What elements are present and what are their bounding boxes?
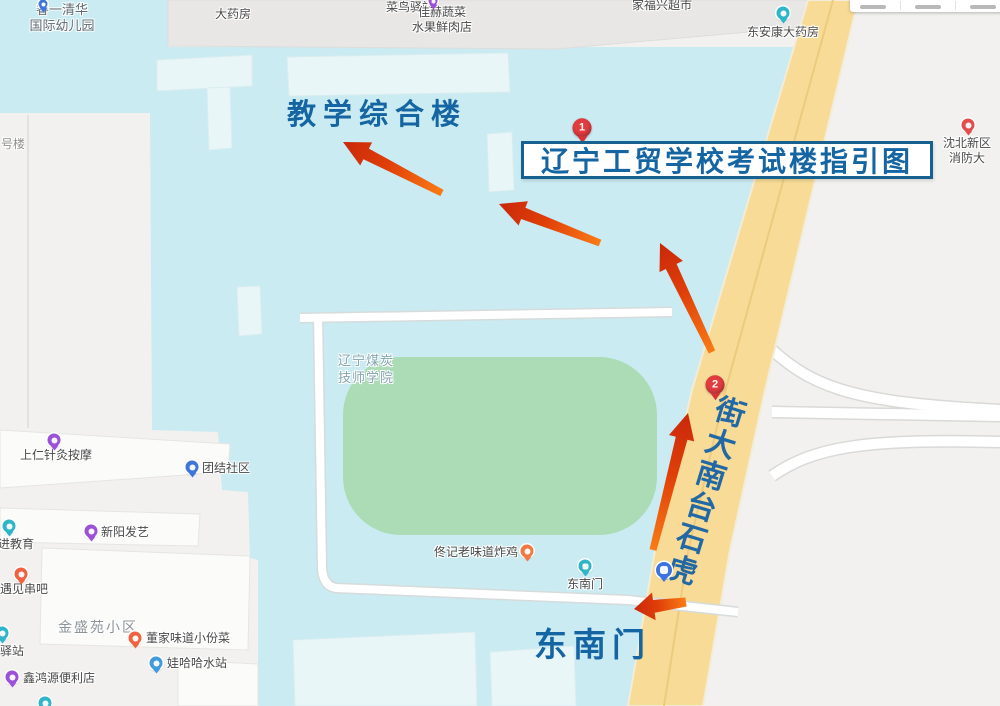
poi-label-dongjia-dishes[interactable]: 董家味道小份菜: [146, 631, 230, 646]
poi-label-jin-education[interactable]: 进教育: [0, 537, 34, 552]
toolbar-separator: [900, 1, 901, 10]
poi-pin-tuanjie-community[interactable]: [186, 461, 199, 474]
poi-label-se-gate-poi[interactable]: 东南门: [567, 577, 603, 592]
poi-label-jinshengyuan-estate[interactable]: 金盛苑小区: [58, 620, 138, 635]
map-title-text: 辽宁工贸学校考试楼指引图: [541, 140, 913, 180]
toolbar-glyph: [915, 5, 941, 9]
poi-pin-dongankang-pharmacy[interactable]: [777, 7, 790, 20]
red-marker-2[interactable]: 2: [706, 375, 725, 394]
poi-label-yizhan[interactable]: 驿站: [0, 644, 24, 659]
toolbar-glyph: [860, 5, 886, 9]
poi-label-wahaha-water[interactable]: 娃哈哈水站: [167, 656, 227, 671]
poi-pin-dongjia-dishes[interactable]: [129, 632, 142, 645]
poi-label-xinhongyuan-store[interactable]: 鑫鸿源便利店: [23, 671, 95, 686]
poi-label-jiafuxing-market[interactable]: 家福兴超市: [632, 0, 692, 13]
map-graphics: [0, 0, 1000, 706]
poi-pin-kindergarten[interactable]: [39, 0, 48, 9]
red-marker-1[interactable]: 1: [573, 118, 592, 137]
map-toolbar[interactable]: [850, 0, 1000, 12]
poi-pin-bus-stop[interactable]: [656, 562, 672, 578]
map-title-box: 辽宁工贸学校考试楼指引图: [521, 141, 933, 179]
poi-pin-edge-pin-bottom[interactable]: [39, 697, 52, 706]
poi-pin-wahaha-water[interactable]: [150, 657, 163, 670]
poi-pin-tongji-chicken[interactable]: [521, 545, 534, 558]
poi-label-fire-brigade[interactable]: 沈北新区消防大: [943, 136, 991, 166]
poi-label-dongankang-pharmacy[interactable]: 东安康大药房: [747, 25, 819, 40]
poi-label-pharmacy-top[interactable]: 大药房: [215, 7, 251, 22]
poi-label-jiahe-grocery[interactable]: 佳赫蔬菜水果鲜肉店: [412, 5, 472, 35]
poi-pin-fire-brigade[interactable]: [962, 119, 975, 132]
poi-label-tongji-chicken[interactable]: 佟记老味道炸鸡: [434, 545, 518, 560]
southeast-gate-annotation: 东南门: [534, 618, 651, 666]
poi-pin-se-gate-poi[interactable]: [579, 560, 592, 573]
toolbar-glyph: [970, 5, 996, 9]
poi-pin-xinhongyuan-store[interactable]: [6, 671, 19, 684]
poi-label-campus-name[interactable]: 辽宁煤炭技师学院: [338, 352, 394, 386]
map-canvas[interactable]: 街大南台石虎 睿一清华国际幼儿园大药房菜鸟驿站佳赫蔬菜水果鲜肉店家福兴超市东安康…: [0, 0, 1000, 706]
poi-pin-shangren-massage[interactable]: [48, 434, 61, 447]
poi-label-tuanjie-community[interactable]: 团结社区: [202, 461, 250, 476]
poi-label-haolou[interactable]: 号楼: [1, 137, 25, 152]
poi-pin-jiahe-grocery[interactable]: [429, 0, 438, 6]
poi-pin-xinyang-hair[interactable]: [85, 525, 98, 538]
poi-pin-yujian-bbq[interactable]: [15, 568, 28, 581]
top-buildings-block: [168, 0, 812, 49]
teaching-building-annotation: 教学综合楼: [287, 91, 467, 133]
poi-label-xinyang-hair[interactable]: 新阳发艺: [101, 525, 149, 540]
poi-pin-jin-education[interactable]: [3, 520, 16, 533]
junction-roads: [770, 348, 1000, 476]
toolbar-separator: [955, 1, 956, 10]
